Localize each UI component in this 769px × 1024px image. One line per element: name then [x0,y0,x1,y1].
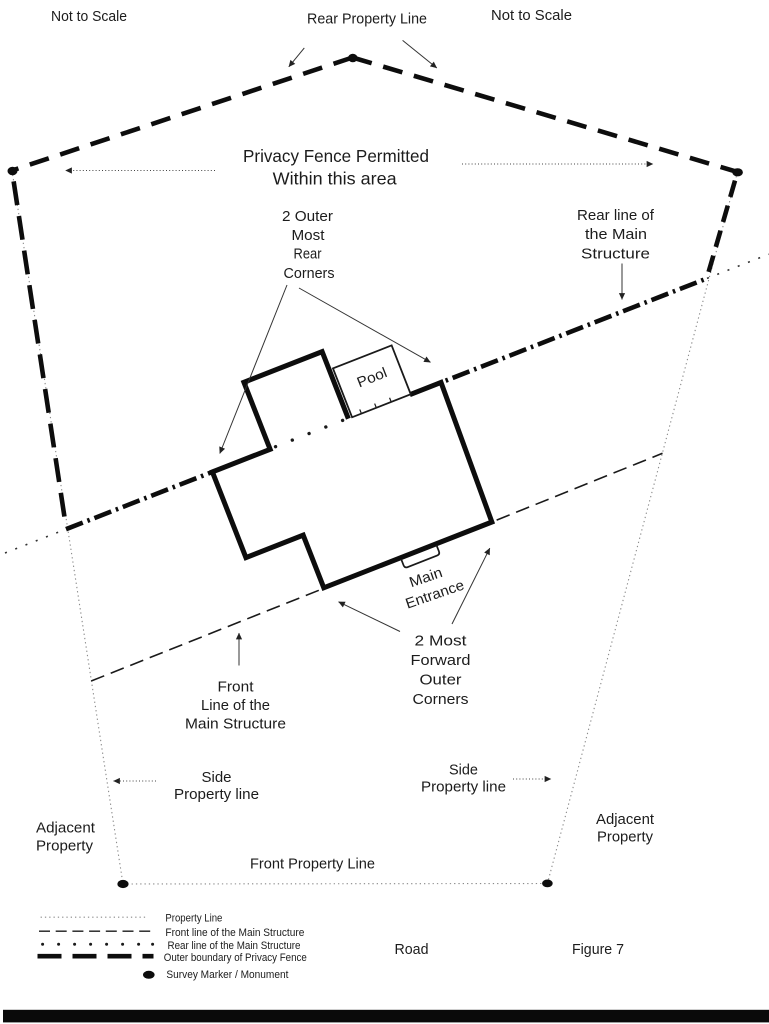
svg-text:Rear: Rear [294,247,322,263]
svg-text:Property line: Property line [174,787,259,803]
svg-text:Rear line of the Main Structur: Rear line of the Main Structure [168,940,301,952]
svg-text:the Main: the Main [585,227,647,243]
svg-text:Property line: Property line [421,780,506,796]
svg-text:Adjacent: Adjacent [596,812,654,828]
svg-text:2 Most: 2 Most [415,634,467,650]
svg-text:Not to Scale: Not to Scale [51,9,127,25]
svg-text:Within this area: Within this area [273,169,397,189]
svg-text:Forward: Forward [411,653,471,669]
svg-text:Adjacent: Adjacent [36,821,95,837]
svg-text:Rear line of: Rear line of [577,208,655,224]
svg-text:Figure 7: Figure 7 [572,941,624,958]
svg-text:Property: Property [597,830,654,846]
svg-text:Front Property Line: Front Property Line [250,857,375,873]
svg-text:Side: Side [449,763,478,779]
svg-text:Front: Front [218,680,254,696]
svg-text:Outer boundary of Privacy Fenc: Outer boundary of Privacy Fence [164,952,307,964]
svg-text:Side: Side [202,770,232,786]
svg-text:Property Line: Property Line [165,913,222,925]
svg-text:Line of the: Line of the [201,698,270,714]
svg-text:Property: Property [36,839,94,855]
svg-text:Corners: Corners [413,692,469,708]
svg-text:Most: Most [292,228,325,244]
svg-text:Survey Marker / Monument: Survey Marker / Monument [166,969,289,981]
svg-text:Structure: Structure [581,247,650,263]
svg-text:Front line of the Main Structu: Front line of the Main Structure [165,927,304,939]
svg-text:Corners: Corners [284,266,335,282]
svg-text:2 Outer: 2 Outer [282,209,333,225]
svg-text:Outer: Outer [420,673,462,689]
svg-text:Rear Property Line: Rear Property Line [307,12,427,28]
svg-text:Main Structure: Main Structure [185,717,286,733]
svg-text:Privacy Fence Permitted: Privacy Fence Permitted [243,146,429,166]
svg-text:Not to Scale: Not to Scale [491,8,572,24]
svg-text:Road: Road [395,941,429,958]
